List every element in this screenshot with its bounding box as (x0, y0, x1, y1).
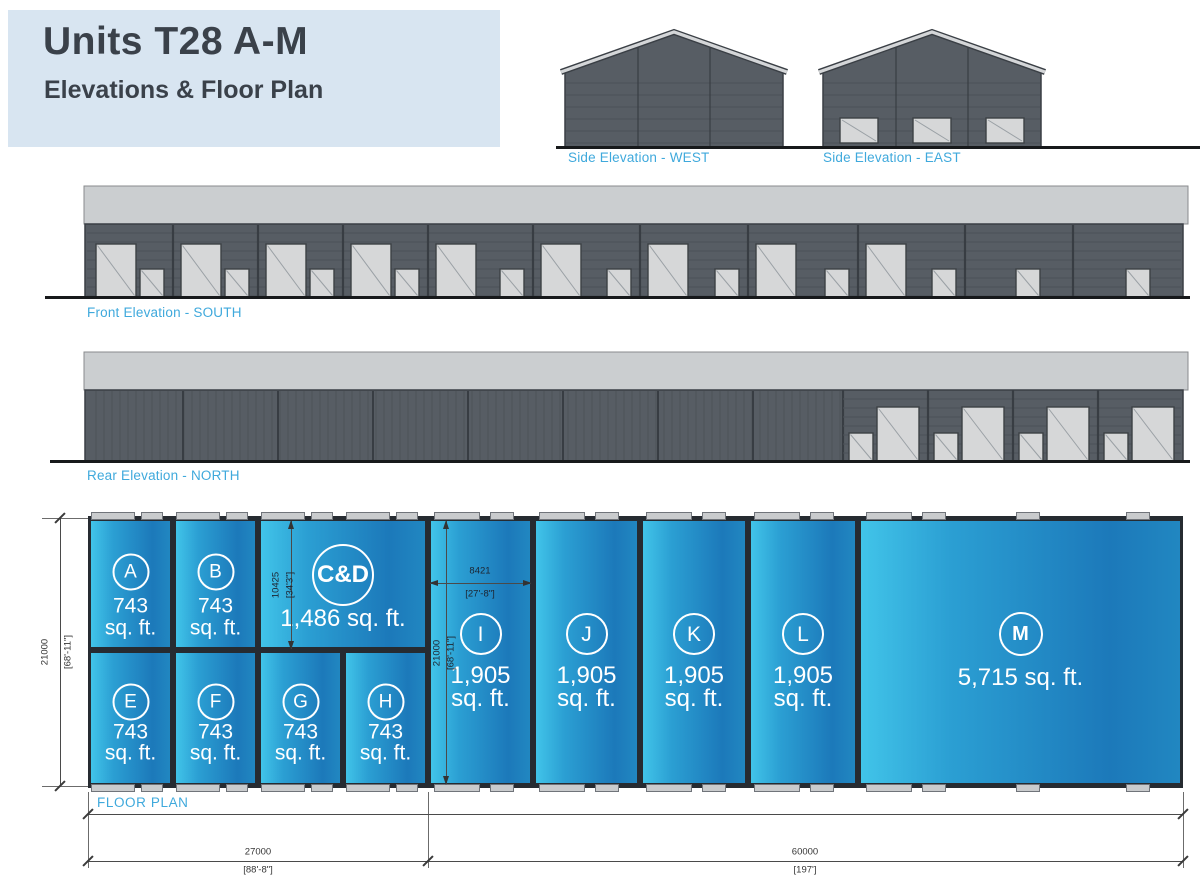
dim-left-height-mm: 21000 (40, 639, 51, 665)
extension-line (42, 786, 88, 787)
unit-area-text: sq. ft. (557, 687, 616, 711)
unit-letter-badge: F (197, 684, 234, 721)
dimension-line (60, 518, 61, 786)
side-elevation-east-label: Side Elevation - EAST (823, 150, 961, 165)
unit-letter-badge: J (566, 613, 608, 655)
dim-unit-i-height-mm: 21000 (432, 640, 443, 666)
drawing-sheet: Units T28 A-M Elevations & Floor Plan Si… (0, 0, 1200, 884)
unit-area-text: 743 (283, 722, 318, 743)
door-opening (176, 784, 220, 792)
dim-unit-i-width-mm: 8421 (469, 566, 490, 577)
dim-left-height-ft: [68'-11"] (63, 635, 74, 669)
page-title: Units T28 A-M (43, 20, 308, 64)
door-opening (922, 784, 946, 792)
door-opening (595, 784, 619, 792)
door-opening (1016, 784, 1040, 792)
door-opening (1126, 512, 1150, 520)
dim-right-block-mm: 60000 (792, 847, 818, 858)
dimension-arrow (288, 520, 294, 529)
door-opening (922, 512, 946, 520)
unit-letter-badge: E (112, 684, 149, 721)
extension-line (42, 518, 88, 519)
unit-area-text: sq. ft. (451, 687, 510, 711)
door-opening (754, 784, 800, 792)
dim-cd-depth-mm: 10425 (271, 572, 282, 598)
dimension-arrow (523, 580, 532, 586)
dim-left-block-mm: 27000 (245, 847, 271, 858)
dimension-line (88, 861, 1183, 862)
door-opening (261, 512, 305, 520)
dim-left-block-ft: [88'-8"] (243, 865, 272, 876)
floor-plan-label: FLOOR PLAN (97, 795, 189, 810)
unit-letter-badge: K (673, 613, 715, 655)
dimension-arrow (288, 641, 294, 650)
dim-unit-i-height-ft: [68'-11"] (446, 636, 457, 670)
side-elevations-drawing (540, 18, 1200, 170)
front-elevation-label: Front Elevation - SOUTH (87, 305, 242, 320)
door-opening (810, 784, 834, 792)
unit-letter-badge: G (282, 684, 319, 721)
door-opening (346, 784, 390, 792)
door-opening (1016, 512, 1040, 520)
door-opening (754, 512, 800, 520)
door-opening (646, 784, 692, 792)
dim-cd-depth-ft: [34'3"] (285, 572, 296, 598)
door-opening (595, 512, 619, 520)
unit-area-text: sq. ft. (190, 618, 241, 639)
door-opening (311, 512, 333, 520)
rear-elevation-drawing (30, 348, 1200, 480)
door-opening (396, 512, 418, 520)
door-opening (141, 512, 163, 520)
door-opening (91, 784, 135, 792)
unit-letter-badge: A (112, 554, 149, 591)
rear-elevation-label: Rear Elevation - NORTH (87, 468, 240, 483)
door-opening (346, 512, 390, 520)
unit-letter-badge: B (197, 554, 234, 591)
extension-line (428, 792, 429, 868)
unit-area-text: sq. ft. (774, 687, 833, 711)
dimension-arrow (429, 580, 438, 586)
unit-letter-badge: C&D (312, 544, 374, 606)
dimension-line (88, 814, 1183, 815)
unit-area-text: 743 (113, 722, 148, 743)
unit-area-text: sq. ft. (105, 618, 156, 639)
door-opening (539, 512, 585, 520)
door-opening (490, 784, 514, 792)
extension-line (88, 792, 89, 868)
door-opening (434, 784, 480, 792)
door-opening (866, 784, 912, 792)
page-subtitle: Elevations & Floor Plan (44, 76, 323, 105)
front-elevation-drawing (30, 183, 1200, 317)
dim-unit-i-width-ft: [27'-8"] (465, 589, 494, 600)
door-opening (702, 512, 726, 520)
door-opening (261, 784, 305, 792)
door-opening (311, 784, 333, 792)
door-opening (490, 512, 514, 520)
side-elevation-west-label: Side Elevation - WEST (568, 150, 710, 165)
door-opening (176, 512, 220, 520)
unit-area-text: 743 (368, 722, 403, 743)
unit-area-text: 1,486 sq. ft. (280, 607, 405, 631)
door-opening (810, 512, 834, 520)
dim-right-block-ft: [197'] (794, 865, 817, 876)
door-opening (646, 512, 692, 520)
door-opening (226, 512, 248, 520)
extension-line (1183, 792, 1184, 868)
unit-letter-badge: M (999, 612, 1043, 656)
door-opening (141, 784, 163, 792)
unit-area-text: sq. ft. (105, 743, 156, 764)
unit-area-text: sq. ft. (190, 743, 241, 764)
door-opening (866, 512, 912, 520)
door-opening (539, 784, 585, 792)
door-opening (702, 784, 726, 792)
door-opening (434, 512, 480, 520)
door-opening (226, 784, 248, 792)
door-opening (1126, 784, 1150, 792)
unit-area-text: sq. ft. (360, 743, 411, 764)
unit-area-text: 743 (113, 596, 148, 617)
unit-area-text: sq. ft. (275, 743, 326, 764)
unit-letter-badge: I (460, 613, 502, 655)
door-opening (396, 784, 418, 792)
unit-area-text: 5,715 sq. ft. (958, 666, 1083, 690)
door-opening (91, 512, 135, 520)
dimension-arrow (443, 776, 449, 785)
unit-letter-badge: H (367, 684, 404, 721)
unit-area-text: sq. ft. (665, 687, 724, 711)
unit-letter-badge: L (782, 613, 824, 655)
unit-area-text: 743 (198, 596, 233, 617)
dimension-arrow (443, 520, 449, 529)
unit-area-text: 743 (198, 722, 233, 743)
